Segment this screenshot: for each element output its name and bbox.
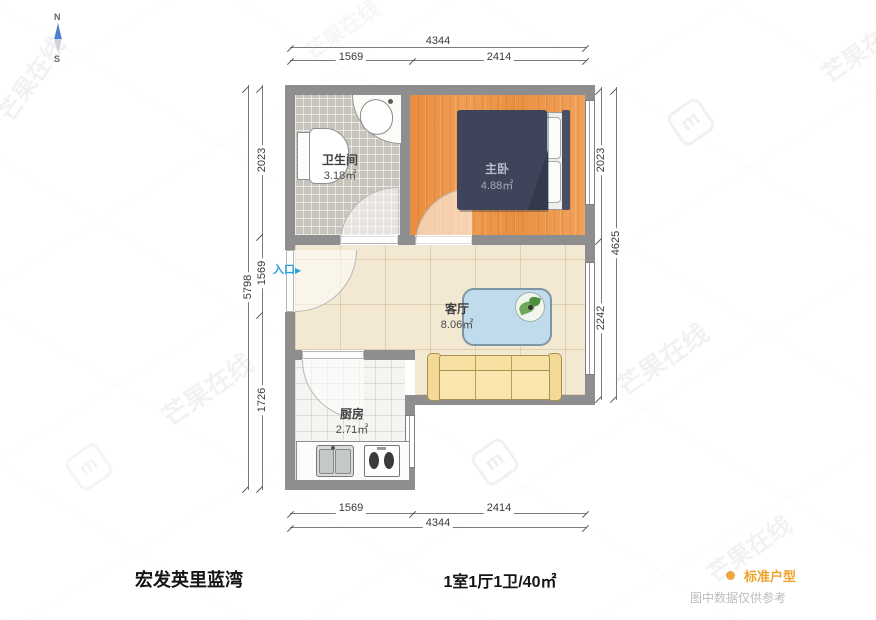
bedroom-area: 4.88㎡ <box>481 177 513 193</box>
kitchen-stove <box>364 445 400 477</box>
compass: N S <box>46 12 70 64</box>
floorplan-page: N S 入口▶ <box>0 0 876 620</box>
dim-bottom-total: 4344 <box>423 517 453 529</box>
compass-needle-south <box>52 39 64 53</box>
dim-right-seg-line <box>601 87 602 400</box>
dim-top-seg-line <box>290 60 586 61</box>
wall-left-lower <box>285 312 295 490</box>
dim-bottom-seg-1: 1569 <box>336 502 366 514</box>
dim-left-seg-3: 1726 <box>256 385 268 415</box>
layout-summary: 1室1厅1卫/40㎡ <box>444 568 557 592</box>
stove-knobs <box>377 447 386 450</box>
living-room-window <box>585 262 595 375</box>
entrance-door-leaf <box>286 250 294 312</box>
property-name: 宏发英里蓝湾 <box>135 566 243 592</box>
kitchen-name: 厨房 <box>340 405 364 422</box>
dim-top-seg-2: 2414 <box>484 51 514 63</box>
wall-kitchen-bottom <box>285 480 415 490</box>
plant-center-dot <box>528 305 533 310</box>
compass-south-label: S <box>54 54 60 64</box>
bedroom-name: 主卧 <box>485 160 509 177</box>
entrance-label: 入口 <box>273 264 295 276</box>
watermark-text: 芒果在线 <box>609 314 715 404</box>
wall-mid-b <box>398 235 415 245</box>
entrance-label-group: 入口▶ <box>273 261 301 277</box>
wall-bath-bedroom <box>400 95 410 235</box>
wall-kitchen-top-a <box>295 350 302 360</box>
entrance-arrow-icon: ▶ <box>295 266 301 275</box>
dim-left-seg-2: 1569 <box>256 258 268 288</box>
disclaimer: 图中数据仅供参考 <box>690 589 786 606</box>
stove-burner-right <box>384 452 394 469</box>
kitchen-area: 2.71㎡ <box>336 421 368 437</box>
legend-dot-icon <box>726 571 735 580</box>
dim-left-total: 5798 <box>242 272 254 302</box>
dim-bottom-seg-line <box>290 513 586 514</box>
compass-needle-north <box>52 23 64 39</box>
dim-right-seg-1: 2023 <box>595 145 607 175</box>
dim-top-total-line <box>290 47 586 48</box>
dim-left-seg-1: 2023 <box>256 145 268 175</box>
dim-top-seg-1: 1569 <box>336 51 366 63</box>
kitchen-door-leaf <box>302 351 364 359</box>
living-room-name: 客厅 <box>445 300 469 317</box>
stove-burner-left <box>369 452 379 469</box>
dim-right-total: 4625 <box>610 228 622 258</box>
bed-headboard <box>562 110 570 210</box>
compass-north-label: N <box>54 12 61 22</box>
sink-faucet <box>388 99 393 104</box>
plant <box>515 292 545 322</box>
wall-top <box>285 85 595 95</box>
wall-kitchen-top-b <box>364 350 415 360</box>
wall-mid-a <box>295 235 340 245</box>
wall-mid-c <box>472 235 585 245</box>
watermark-logo-icon: m <box>63 441 116 494</box>
bathroom-name: 卫生间 <box>322 151 358 168</box>
bedroom-window <box>585 100 595 205</box>
watermark-logo-icon: m <box>665 96 718 149</box>
bathroom-area: 3.18㎡ <box>324 167 356 183</box>
watermark-text: 芒果在线 <box>814 6 876 90</box>
sofa-seat <box>439 370 550 400</box>
watermark-text: 芒果在线 <box>154 344 260 434</box>
legend-standard-layout[interactable]: 标准户型 <box>744 566 796 585</box>
watermark-logo-icon: m <box>469 436 522 489</box>
dim-right-seg-2: 2242 <box>595 303 607 333</box>
living-room-area: 8.06㎡ <box>441 316 473 332</box>
kitchen-sink <box>316 445 354 477</box>
wall-left-upper <box>285 85 295 250</box>
kitchen-sink-basin-left <box>319 449 334 474</box>
dim-bottom-seg-2: 2414 <box>484 502 514 514</box>
kitchen-sink-basin-right <box>335 449 351 474</box>
kitchen-faucet <box>331 446 335 450</box>
dim-top-total: 4344 <box>423 35 453 47</box>
